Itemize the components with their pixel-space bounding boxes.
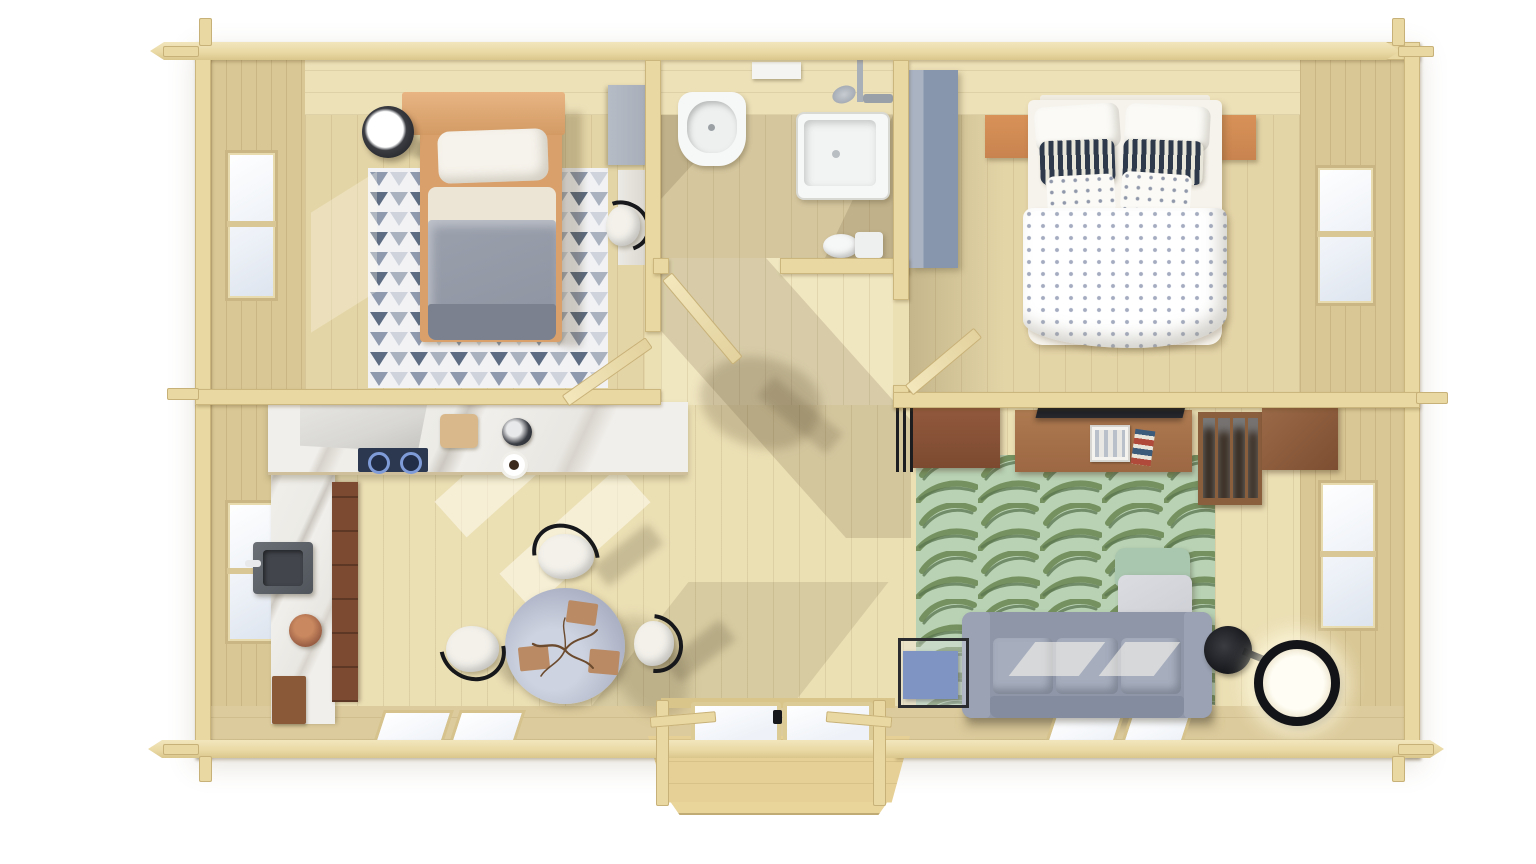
- porch-step: [666, 802, 892, 815]
- books-stack: [1131, 429, 1156, 466]
- log-end-bottom-left-h: [163, 744, 199, 755]
- dining-chair-top: [532, 528, 600, 585]
- shower-mixer-bar: [863, 94, 893, 103]
- sofa-backrest: [990, 696, 1184, 718]
- picture-art: [1095, 430, 1125, 457]
- bathroom-wall-shelf: [752, 62, 801, 79]
- extractor-hood: [300, 400, 428, 452]
- coffee-pot: [502, 418, 532, 446]
- log-end-bottom-right-v: [1392, 756, 1405, 782]
- cooktop: [358, 448, 428, 472]
- picture-frame: [1090, 425, 1130, 462]
- log-end-mid-right: [1416, 392, 1448, 404]
- bedroom-1-wardrobe: [608, 85, 650, 165]
- sofa-arm-right: [1184, 612, 1212, 718]
- burner-right: [400, 452, 422, 474]
- log-end-bottom-right-h: [1398, 744, 1434, 755]
- floor-lamp-drum: [1254, 640, 1340, 726]
- bar-slot-4: [1248, 418, 1258, 498]
- cutting-board: [440, 414, 478, 448]
- bed-2-duvet: [1023, 208, 1227, 348]
- log-end-mid-left: [167, 388, 199, 400]
- side-table: [898, 638, 969, 708]
- burner-left: [368, 452, 390, 474]
- side-table-shelf: [903, 651, 958, 699]
- entrance-door-handle: [773, 710, 782, 724]
- headboard-shelf: [402, 92, 565, 135]
- bedside-lamp: [362, 106, 414, 158]
- sofa: [962, 612, 1212, 718]
- log-end-bottom-left-v: [199, 756, 212, 782]
- bedroom-1-window: [225, 150, 278, 301]
- hallway-upper-floor: [661, 258, 893, 405]
- roof-beam-top: [150, 42, 1400, 60]
- kitchen-base-cabinet: [332, 482, 358, 702]
- living-room-window-east: [1318, 480, 1378, 631]
- wash-basin-drain: [708, 124, 715, 131]
- sink-basin: [263, 550, 303, 586]
- radiator: [896, 408, 914, 472]
- sofa-cushion-1: [993, 638, 1053, 694]
- wall-bathroom-south-right: [780, 258, 909, 274]
- living-wall-cabinet: [1262, 404, 1338, 470]
- plant-pot: [289, 614, 322, 647]
- log-end-top-left-h: [163, 46, 199, 57]
- coffee-cup: [503, 454, 525, 476]
- floor-plan-canvas: [0, 0, 1536, 864]
- toilet: [823, 232, 885, 260]
- cabin-house: [195, 42, 1420, 758]
- coffee-cup-coffee: [509, 460, 519, 470]
- toilet-tank: [855, 232, 883, 258]
- wall-bedroom1-bathroom: [645, 60, 661, 332]
- wash-basin: [678, 92, 746, 166]
- roof-beam-bottom: [148, 740, 1444, 758]
- bar-slot-1: [1203, 418, 1215, 498]
- dining-chair-left: [440, 620, 505, 678]
- bar-slot-3: [1233, 418, 1245, 498]
- wall-bathroom-bedroom2-upper: [893, 60, 909, 300]
- branch-centerpiece: [523, 606, 607, 690]
- bar-shelf: [1198, 412, 1262, 505]
- desk-chair: [600, 200, 646, 252]
- sink-faucet: [245, 560, 261, 567]
- bar-slot-2: [1218, 418, 1230, 498]
- wall-bedroom2-living: [893, 392, 1420, 408]
- bed-1-blanket: [428, 304, 556, 340]
- tv-sideboard: [1015, 410, 1192, 472]
- dining-chair-right: [628, 615, 680, 672]
- bed-1-pillow: [437, 128, 549, 184]
- shower-drain: [832, 150, 840, 158]
- toilet-bowl: [823, 234, 859, 258]
- shower-tray-basin: [804, 120, 876, 186]
- log-end-top-right-v: [1392, 18, 1405, 46]
- wall-bedroom1-kitchen: [195, 389, 661, 405]
- log-end-top-right-h: [1398, 46, 1434, 57]
- sofa-cushion-2: [1056, 638, 1118, 694]
- floor-mat: [272, 676, 306, 724]
- sofa-cushion-3: [1121, 638, 1181, 694]
- log-end-top-left-v: [199, 18, 212, 46]
- bedroom-2-wardrobe: [909, 70, 958, 268]
- dresser: [913, 404, 1000, 468]
- wall-sink: [253, 542, 313, 594]
- wall-bathroom-south-left: [653, 258, 669, 274]
- bedroom-2-window: [1315, 165, 1376, 306]
- dining-table: [505, 588, 625, 704]
- shower-tray: [796, 112, 890, 200]
